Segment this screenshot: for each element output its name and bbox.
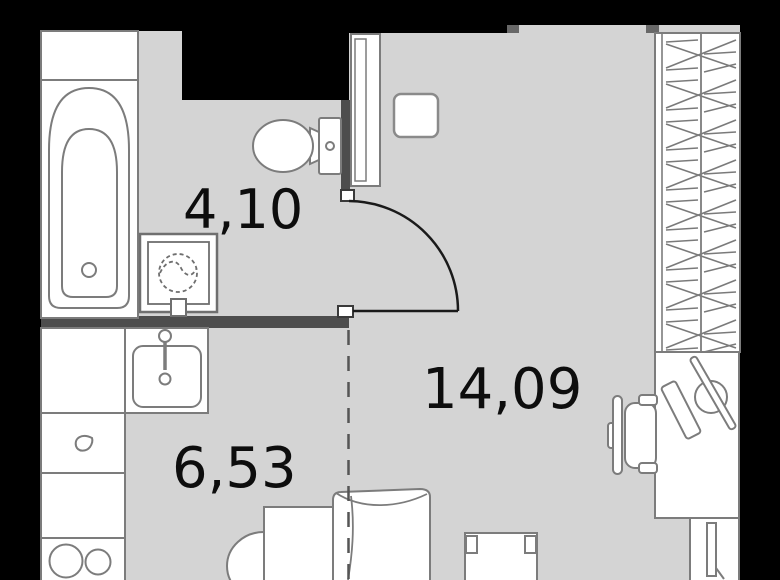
bathroom-area-label: 4,10	[183, 178, 303, 241]
hall-stool	[394, 94, 438, 137]
burner-large	[50, 545, 83, 578]
kitchen-sink	[125, 328, 208, 413]
faucet	[159, 330, 171, 342]
wardrobe	[655, 33, 740, 352]
tv-bench	[465, 533, 537, 580]
cabinet-handle	[76, 436, 93, 451]
sink-drain	[160, 374, 171, 385]
radiator	[690, 518, 739, 580]
chair-backrest	[613, 396, 622, 474]
washing-machine	[140, 234, 217, 316]
desk	[655, 352, 739, 518]
door-jamb-bottom	[338, 306, 353, 317]
bathtub-drain	[82, 263, 96, 277]
floor-plan-svg: 4,10 6,53 14,09	[0, 0, 780, 580]
chair-seat	[625, 403, 656, 468]
chair-armrest-bottom	[639, 463, 657, 473]
living-area-label: 14,09	[422, 357, 582, 422]
chair-armrest-top	[639, 395, 657, 405]
kitchen-counter	[41, 328, 125, 580]
washer-valve	[171, 299, 186, 316]
bathtub	[41, 31, 138, 318]
burner-small	[86, 550, 111, 575]
wall-stub-left	[507, 25, 519, 33]
desk-chair	[608, 395, 657, 474]
wall-stub-right	[646, 25, 659, 33]
door-jamb-top	[341, 190, 354, 201]
toilet	[253, 118, 341, 174]
toilet-flush-button	[326, 142, 334, 150]
toilet-bowl	[253, 120, 313, 172]
washer-drum	[159, 254, 197, 292]
floor-plan-canvas: 4,10 6,53 14,09	[0, 0, 780, 580]
bed-table	[264, 507, 333, 580]
kitchen-area-label: 6,53	[172, 436, 297, 501]
bathroom-side-wall	[341, 100, 350, 193]
